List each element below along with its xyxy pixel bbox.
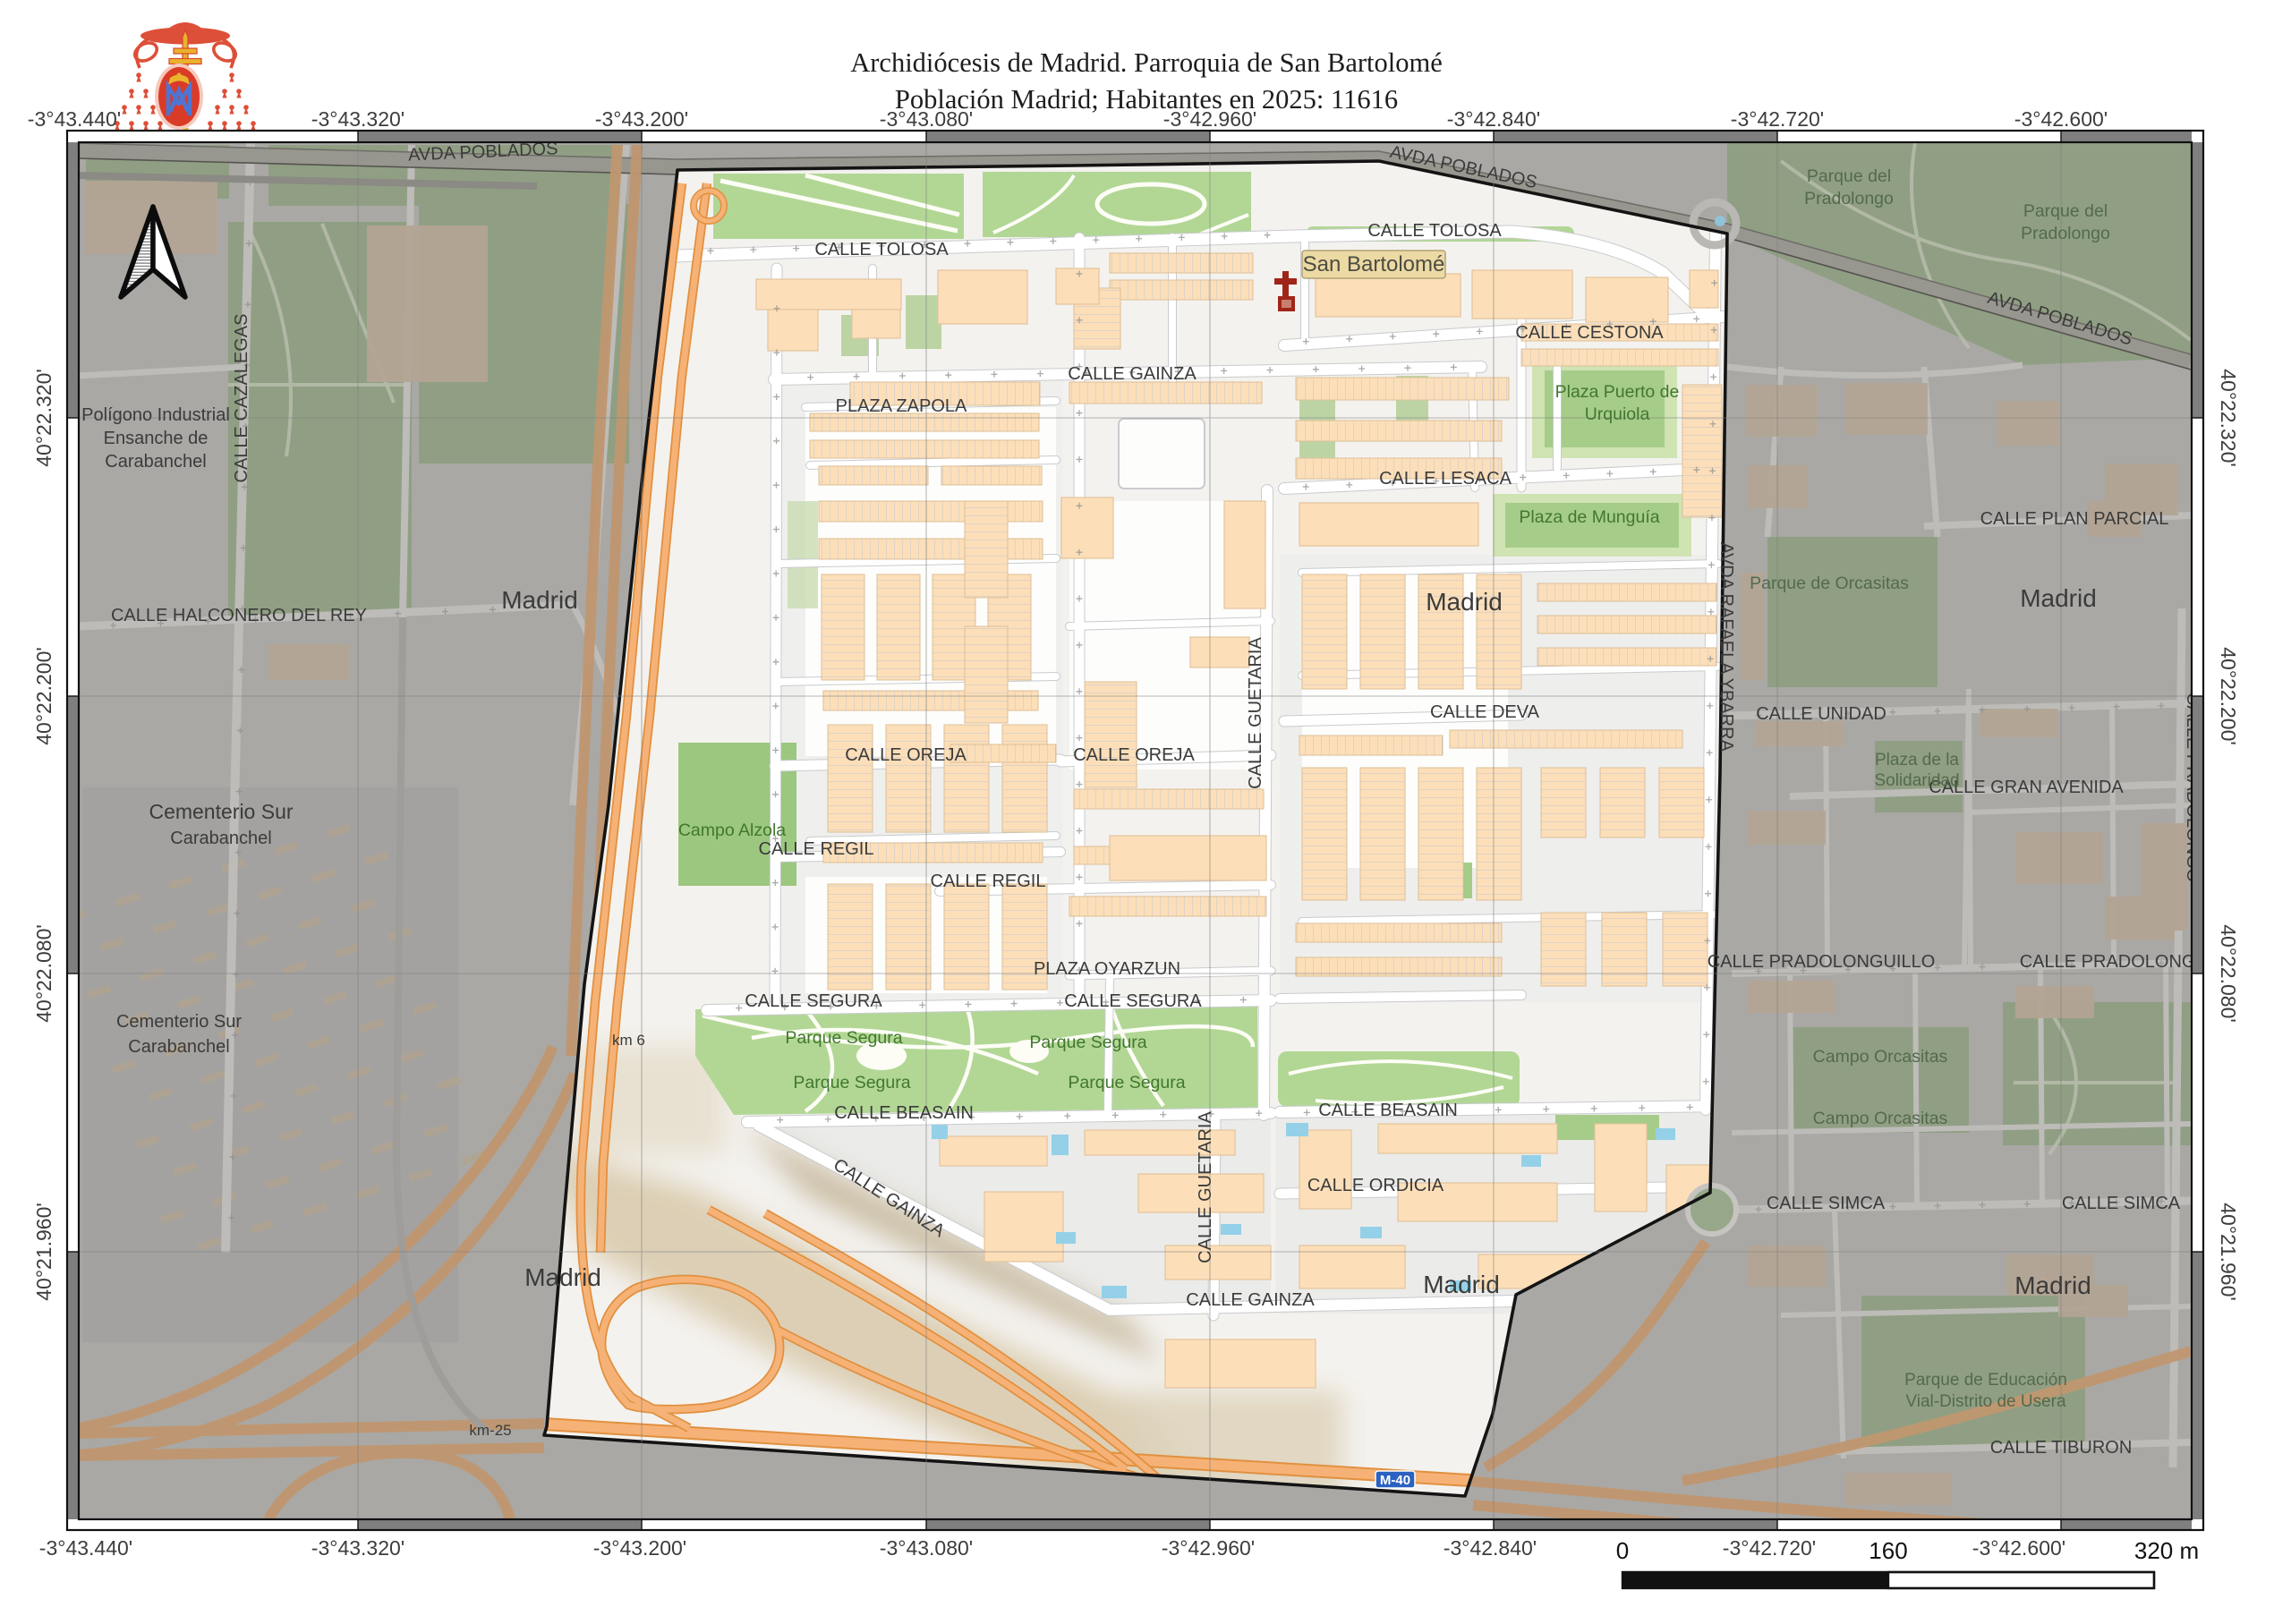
svg-text:Pradolongo: Pradolongo (1804, 189, 1894, 208)
svg-text:Plaza Puerto de: Plaza Puerto de (1555, 382, 1680, 402)
svg-text:CALLE OREJA: CALLE OREJA (845, 745, 967, 765)
svg-text:Carabanchel: Carabanchel (170, 829, 271, 848)
svg-text:Parque del: Parque del (2023, 201, 2108, 221)
svg-text:CALLE PRADOLONGUILLO: CALLE PRADOLONGUILLO (1708, 952, 1936, 972)
svg-text:CALLE REGIL: CALLE REGIL (759, 839, 874, 859)
svg-text:CALLE ORDICIA: CALLE ORDICIA (1307, 1176, 1444, 1195)
svg-text:-3°42.960': -3°42.960' (1163, 107, 1256, 131)
svg-text:Polígono Industrial: Polígono Industrial (81, 405, 230, 425)
svg-text:Campo Alzola: Campo Alzola (678, 821, 786, 840)
svg-text:320 m: 320 m (2134, 1537, 2199, 1564)
svg-text:CALLE SIMCA: CALLE SIMCA (2062, 1194, 2181, 1213)
svg-text:40°22.080': 40°22.080' (2217, 924, 2240, 1023)
svg-text:-3°43.440': -3°43.440' (28, 107, 121, 131)
svg-text:CALLE PLAN PARCIAL: CALLE PLAN PARCIAL (1980, 509, 2169, 529)
svg-text:Madrid: Madrid (1426, 588, 1503, 616)
svg-text:Parque Segura: Parque Segura (1068, 1073, 1185, 1093)
svg-text:CALLE HALCONERO DEL REY: CALLE HALCONERO DEL REY (111, 606, 367, 625)
svg-text:PLAZA ZAPOLA: PLAZA ZAPOLA (836, 396, 967, 416)
svg-text:-3°43.200': -3°43.200' (595, 107, 688, 131)
svg-text:40°22.320': 40°22.320' (32, 369, 55, 467)
svg-text:-3°42.720': -3°42.720' (1731, 107, 1824, 131)
svg-text:CALLE UNIDAD: CALLE UNIDAD (1756, 704, 1886, 724)
svg-text:40°22.080': 40°22.080' (32, 924, 55, 1023)
svg-text:CALLE SIMCA: CALLE SIMCA (1767, 1194, 1886, 1213)
svg-text:CALLE GAINZA: CALLE GAINZA (1186, 1290, 1315, 1310)
svg-text:CALLE PRADOLONGUILLO: CALLE PRADOLONGUILLO (2020, 952, 2248, 972)
svg-text:Cementerio Sur: Cementerio Sur (149, 800, 293, 823)
svg-text:CALLE BEASAIN: CALLE BEASAIN (834, 1103, 974, 1123)
svg-text:M-40: M-40 (1380, 1473, 1410, 1488)
svg-text:-3°42.600': -3°42.600' (2014, 107, 2108, 131)
svg-text:Madrid: Madrid (501, 586, 578, 614)
svg-text:Parque de Orcasitas: Parque de Orcasitas (1750, 574, 1909, 593)
svg-text:Parque del: Parque del (1807, 166, 1891, 186)
svg-text:-3°42.720': -3°42.720' (1723, 1536, 1816, 1560)
svg-text:Campo Orcasitas: Campo Orcasitas (1813, 1109, 1948, 1128)
svg-text:CALLE SEGURA: CALLE SEGURA (1064, 991, 1202, 1011)
svg-text:CALLE TIBURON: CALLE TIBURON (1990, 1438, 2133, 1458)
svg-text:-3°42.600': -3°42.600' (1972, 1536, 2065, 1560)
svg-text:Parque Segura: Parque Segura (793, 1073, 910, 1093)
svg-text:-3°43.200': -3°43.200' (593, 1536, 686, 1560)
svg-text:CALLE TOLOSA: CALLE TOLOSA (1367, 221, 1502, 241)
svg-text:Ensanche de: Ensanche de (104, 429, 209, 448)
svg-text:Pradolongo: Pradolongo (2021, 224, 2110, 243)
svg-text:Urquiola: Urquiola (1585, 404, 1650, 424)
svg-text:CALLE CAZALEGAS: CALLE CAZALEGAS (232, 314, 251, 483)
svg-text:40°21.960': 40°21.960' (2217, 1203, 2240, 1301)
svg-text:40°22.320': 40°22.320' (2217, 369, 2240, 467)
svg-text:CALLE SEGURA: CALLE SEGURA (745, 991, 882, 1011)
svg-text:40°21.960': 40°21.960' (32, 1203, 55, 1301)
svg-text:San Bartolomé: San Bartolomé (1303, 252, 1445, 276)
svg-text:Archidiócesis de Madrid. Parro: Archidiócesis de Madrid. Parroquia de Sa… (850, 47, 1443, 78)
svg-text:-3°42.840': -3°42.840' (1444, 1536, 1537, 1560)
svg-text:-3°43.080': -3°43.080' (880, 107, 973, 131)
svg-text:CALLE CESTONA: CALLE CESTONA (1515, 323, 1664, 343)
svg-text:CALLE DEVA: CALLE DEVA (1430, 702, 1540, 722)
svg-text:CALLE BEASAIN: CALLE BEASAIN (1318, 1101, 1458, 1120)
svg-text:PLAZA OYARZUN: PLAZA OYARZUN (1034, 959, 1180, 979)
svg-text:-3°43.320': -3°43.320' (311, 1536, 405, 1560)
svg-text:Campo Orcasitas: Campo Orcasitas (1813, 1047, 1948, 1067)
svg-text:Carabanchel: Carabanchel (128, 1037, 229, 1057)
svg-text:Solidaridad: Solidaridad (1874, 771, 1959, 790)
svg-text:Vial-Distrito de Usera: Vial-Distrito de Usera (1905, 1392, 2066, 1411)
svg-text:-3°43.440': -3°43.440' (39, 1536, 132, 1560)
svg-text:Madrid: Madrid (2014, 1271, 2091, 1299)
svg-text:CALLE GUETARIA: CALLE GUETARIA (1246, 637, 1265, 789)
svg-text:Cementerio Sur: Cementerio Sur (116, 1012, 242, 1032)
svg-text:Plaza de Munguía: Plaza de Munguía (1519, 507, 1659, 527)
svg-text:-3°42.840': -3°42.840' (1447, 107, 1540, 131)
svg-text:-3°43.320': -3°43.320' (311, 107, 405, 131)
svg-text:Madrid: Madrid (524, 1263, 601, 1291)
svg-text:CALLE TOLOSA: CALLE TOLOSA (814, 240, 949, 259)
svg-text:km 6: km 6 (612, 1032, 645, 1049)
svg-text:km-25: km-25 (469, 1422, 511, 1439)
svg-text:160: 160 (1869, 1537, 1907, 1564)
svg-text:Parque Segura: Parque Segura (785, 1028, 902, 1048)
svg-text:Parque de Educación: Parque de Educación (1904, 1371, 2067, 1390)
svg-text:Carabanchel: Carabanchel (105, 452, 206, 472)
svg-text:CALLE OREJA: CALLE OREJA (1073, 745, 1195, 765)
svg-text:AVDA RAFAELA YBARRA: AVDA RAFAELA YBARRA (1716, 542, 1736, 752)
svg-text:0: 0 (1616, 1537, 1629, 1564)
svg-text:40°22.200': 40°22.200' (2217, 647, 2240, 745)
svg-text:Madrid: Madrid (2020, 584, 2097, 612)
svg-text:CALLE GAINZA: CALLE GAINZA (1068, 364, 1197, 384)
svg-text:40°22.200': 40°22.200' (32, 647, 55, 745)
svg-text:CALLE LESACA: CALLE LESACA (1379, 469, 1512, 489)
svg-text:-3°43.080': -3°43.080' (880, 1536, 973, 1560)
svg-text:CALLE GUETARIA: CALLE GUETARIA (1196, 1111, 1215, 1263)
svg-text:CALLE REGIL: CALLE REGIL (931, 872, 1046, 891)
svg-text:-3°42.960': -3°42.960' (1162, 1536, 1255, 1560)
svg-text:Madrid: Madrid (1423, 1271, 1500, 1298)
svg-text:Parque Segura: Parque Segura (1029, 1033, 1146, 1052)
svg-text:Plaza de la: Plaza de la (1875, 751, 1959, 769)
